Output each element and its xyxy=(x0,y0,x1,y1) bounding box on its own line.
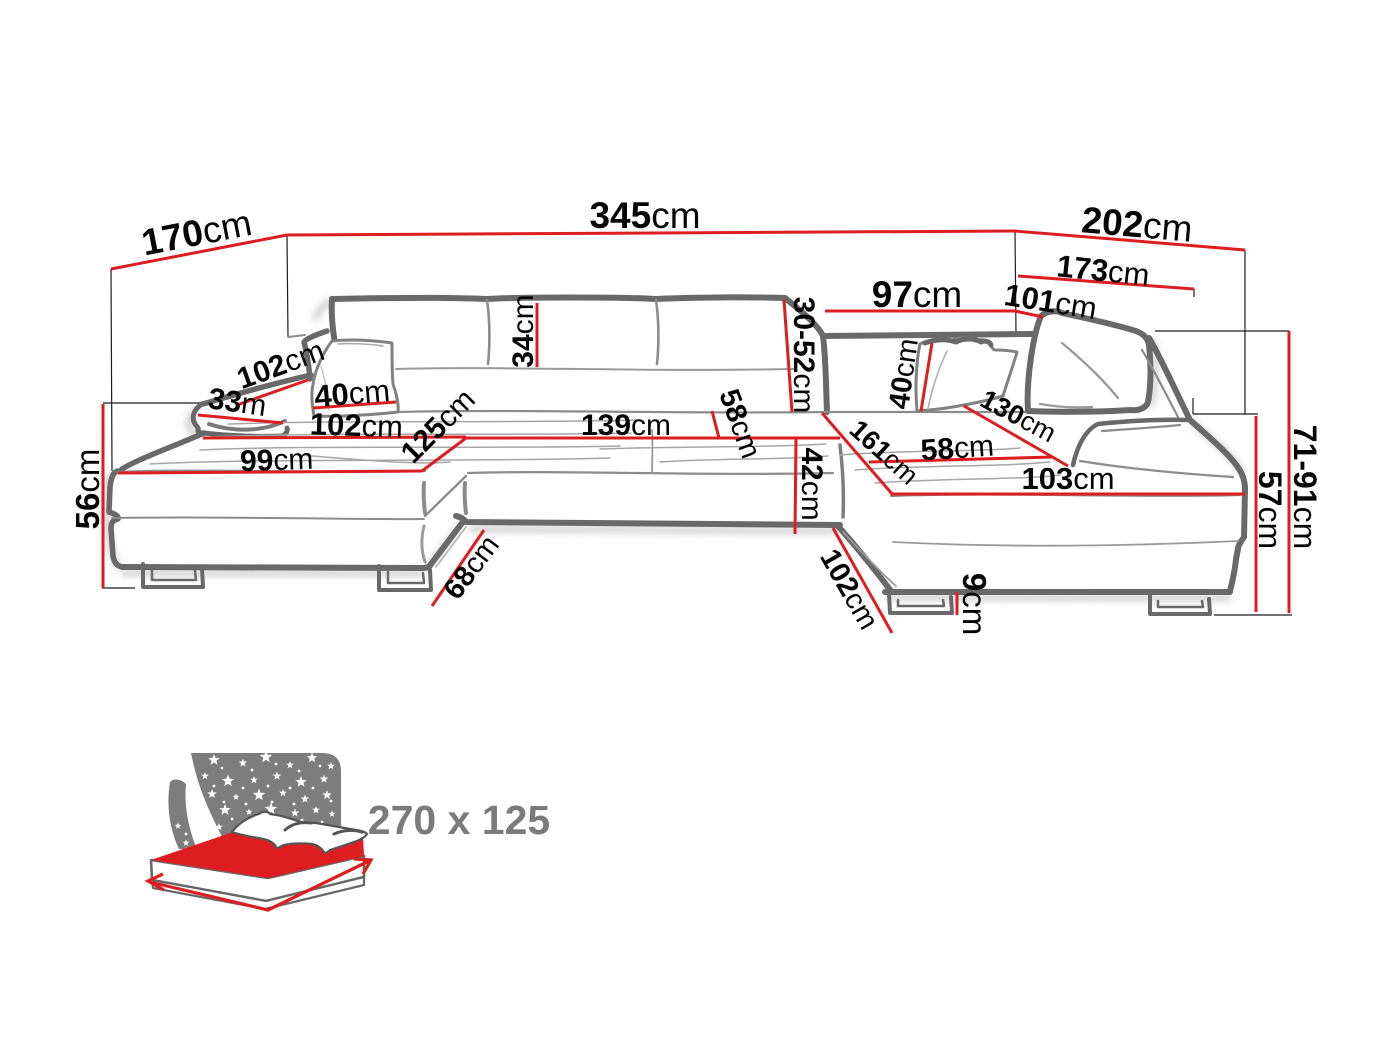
svg-text:71-91cm: 71-91cm xyxy=(1287,425,1323,550)
svg-text:56cm: 56cm xyxy=(69,449,106,530)
svg-text:58cm: 58cm xyxy=(712,385,766,463)
svg-text:9cm: 9cm xyxy=(956,573,993,635)
svg-text:345cm: 345cm xyxy=(589,195,700,236)
svg-text:125cm: 125cm xyxy=(395,383,482,470)
svg-text:34cm: 34cm xyxy=(507,294,540,367)
svg-text:102cm: 102cm xyxy=(813,544,884,635)
svg-text:58cm: 58cm xyxy=(920,430,995,468)
svg-text:99cm: 99cm xyxy=(239,443,313,479)
svg-text:57cm: 57cm xyxy=(1252,471,1288,549)
svg-text:42cm: 42cm xyxy=(795,447,828,520)
svg-text:30-52cm: 30-52cm xyxy=(787,297,820,414)
svg-text:97cm: 97cm xyxy=(872,274,962,315)
svg-text:270 x 125: 270 x 125 xyxy=(368,797,550,843)
svg-text:170cm: 170cm xyxy=(138,202,255,263)
svg-text:103cm: 103cm xyxy=(1021,461,1114,496)
svg-text:202cm: 202cm xyxy=(1080,199,1194,250)
svg-text:139cm: 139cm xyxy=(581,409,671,442)
svg-text:102cm: 102cm xyxy=(309,406,403,444)
